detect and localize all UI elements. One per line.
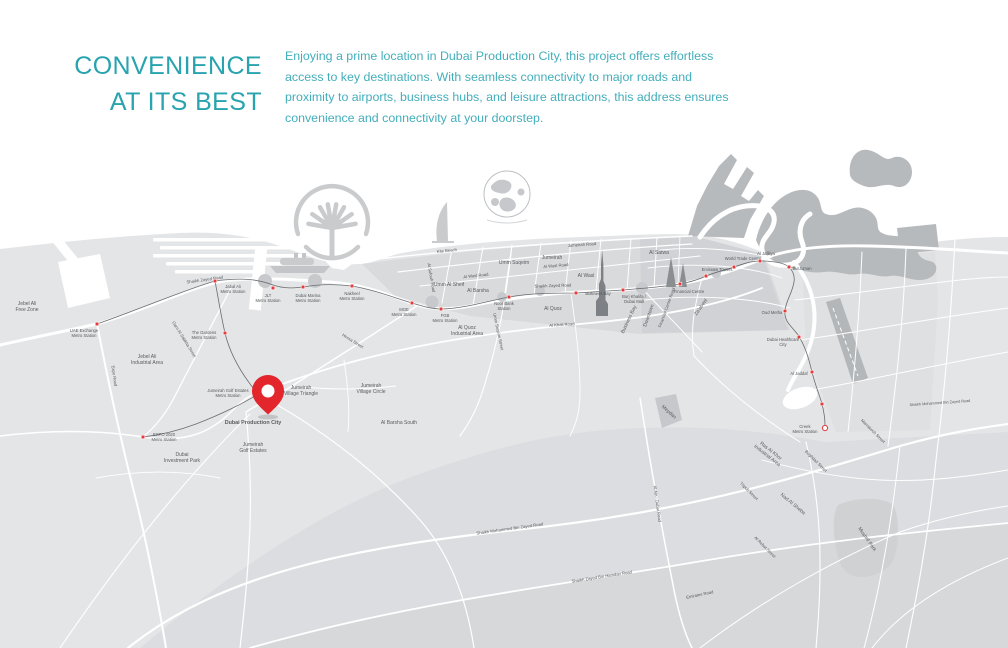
map-area-label: Al Satwa <box>649 250 669 256</box>
metro-station-marker <box>410 301 414 305</box>
metro-station-marker <box>704 274 708 278</box>
metro-station-marker <box>678 282 682 286</box>
metro-station-marker <box>439 307 443 311</box>
metro-station-marker <box>350 284 354 288</box>
palm-fronds <box>308 204 355 228</box>
metro-station-label: The GardensMetro Station <box>192 330 218 340</box>
map-area-label: Jumeirah <box>542 255 563 261</box>
globe-shadow <box>487 220 527 223</box>
ship-deck <box>280 258 314 265</box>
metro-station-marker <box>574 291 578 295</box>
metro-station-marker <box>787 265 791 269</box>
berth-bar <box>153 238 303 242</box>
pin-hole <box>262 385 275 398</box>
map-area-label: Jebel AliFree Zone <box>15 301 38 313</box>
sail-shape <box>436 202 448 241</box>
metro-station-marker <box>822 425 827 430</box>
metro-station-label: BurJuman <box>792 266 812 271</box>
metro-station-label: Emirates Towers <box>702 267 733 272</box>
ship-hull <box>270 266 330 273</box>
metro-station-label: Al Jafiliya <box>757 251 775 256</box>
metro-station-marker <box>621 288 625 292</box>
map-area-label: Umm Suqeim <box>499 260 529 266</box>
metro-station-label: Oud Metha <box>762 310 783 315</box>
ship-funnel <box>294 253 298 258</box>
brochure-page: CONVENIENCE AT ITS BEST Enjoying a prime… <box>0 0 1008 648</box>
metro-station-label: Burj Khalifa /Dubai Mall <box>622 294 647 304</box>
map-area-label: Al Quoz <box>544 306 562 312</box>
map-area-label: Al Barsha <box>467 288 489 294</box>
pin-shadow <box>258 415 278 420</box>
palm-jumeirah-icon <box>296 186 368 260</box>
metro-station-label: UAE ExchangeMetro Station <box>70 328 99 338</box>
metro-station-label: Dubai MarinaMetro Station <box>296 293 322 303</box>
map-area-label: JumeirahGolf Estates <box>239 442 267 454</box>
berth-bar <box>166 262 284 266</box>
metro-station-marker <box>783 309 787 313</box>
metro-station-label: Al Jaddaf <box>790 371 808 376</box>
metro-station-marker <box>810 370 814 374</box>
metro-station-label: Business Bay <box>585 291 611 296</box>
globe-continent <box>491 198 499 206</box>
map-area-label: Umm Al Sheif <box>434 282 465 288</box>
map-area-label: Al Barsha South <box>381 420 417 426</box>
metro-station-marker <box>271 286 275 290</box>
map-area-label: Dubai Production City <box>225 420 282 426</box>
metro-station-marker <box>213 279 217 283</box>
palm-deira <box>850 150 912 187</box>
metro-station-marker <box>141 435 145 439</box>
map-area-label: Al Wasl <box>578 273 595 279</box>
berth-bar <box>175 270 265 274</box>
berth-bar <box>160 246 295 250</box>
globe-continent <box>518 189 525 196</box>
metro-station-marker <box>507 295 511 299</box>
metro-station-marker <box>820 402 824 406</box>
world-islands-icon <box>484 171 530 223</box>
metro-station-marker <box>732 265 736 269</box>
metro-station-marker <box>223 331 227 335</box>
metro-station-label: EXPO 2020Metro Station <box>152 432 178 442</box>
berth-bar <box>153 254 303 258</box>
metro-station-marker <box>301 285 305 289</box>
dubai-map: Jebel AliFree ZoneJebel AliIndustrial Ar… <box>0 0 1008 648</box>
port-rashid <box>688 154 764 238</box>
metro-station-label: Financial Centre <box>674 289 705 294</box>
burj-al-arab-icon <box>432 202 454 242</box>
ship-funnel <box>302 253 306 258</box>
interchange <box>426 296 439 309</box>
metro-station-label: World Trade Centre <box>725 256 762 261</box>
metro-station-marker <box>758 259 762 263</box>
metro-station-marker <box>95 322 99 326</box>
